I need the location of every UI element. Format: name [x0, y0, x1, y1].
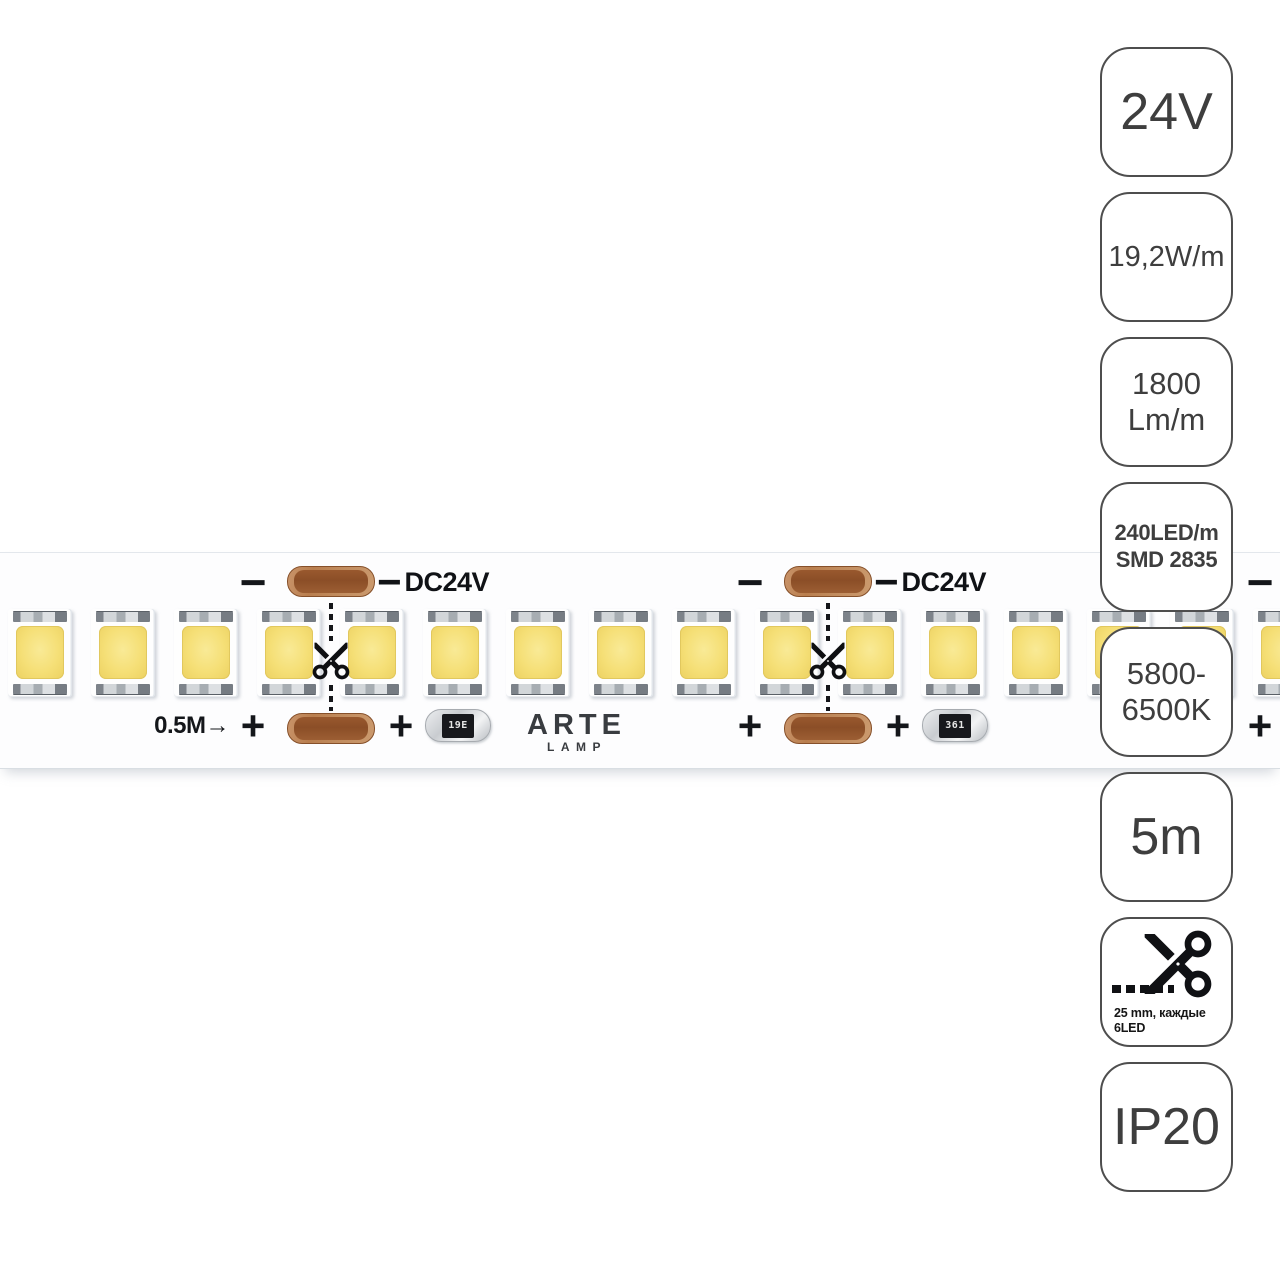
brand-name: ARTE [527, 711, 626, 740]
copper-solder-pad [784, 713, 872, 744]
led-chip [1004, 609, 1068, 697]
led-contact [96, 684, 150, 694]
brand-logo: ARTE LAMP [527, 711, 626, 753]
led-chip [506, 609, 570, 697]
led-contact [594, 684, 648, 694]
led-emitter [763, 626, 811, 679]
cut-line [329, 685, 333, 711]
cut-step-text: 25 mm, каждые [1114, 1006, 1206, 1021]
resistor-marking: 19E [442, 714, 474, 738]
brand-subname: LAMP [547, 741, 626, 753]
led-contact [96, 612, 150, 622]
led-contact [1009, 612, 1063, 622]
spec-badges: 24V 19,2W/m 1800 Lm/m 240LED/m SMD 2835 … [1100, 47, 1233, 1192]
led-chip [589, 609, 653, 697]
resistor-component: 361 [922, 709, 988, 742]
led-chip [91, 609, 155, 697]
led-chip [8, 609, 72, 697]
minus-polarity-mark: − [728, 567, 772, 597]
led-chip [672, 609, 736, 697]
led-contact [262, 612, 316, 622]
led-contact [179, 612, 233, 622]
led-chip [423, 609, 487, 697]
led-emitter [1012, 626, 1060, 679]
led-emitter [1261, 626, 1280, 679]
led-contact [262, 684, 316, 694]
cut-scissors-icon [309, 639, 353, 683]
cut-scissors-icon [806, 639, 850, 683]
resistor-marking: 361 [939, 714, 971, 738]
led-contact [511, 684, 565, 694]
badge-luminous-flux: 1800 Lm/m [1100, 337, 1233, 467]
led-chip [174, 609, 238, 697]
led-contact [428, 612, 482, 622]
badge-ip-rating: IP20 [1100, 1062, 1233, 1192]
plus-polarity-mark: + [728, 711, 772, 741]
cut-line [329, 603, 333, 641]
plus-polarity-mark: + [876, 711, 920, 741]
led-contact [1258, 684, 1280, 694]
cut-step-text: 6LED [1114, 1021, 1206, 1036]
badge-label: 19,2W/m [1108, 243, 1224, 272]
badge-label: 240LED/m [1115, 520, 1219, 547]
badge-label: 1800 [1132, 366, 1201, 402]
led-contact [428, 684, 482, 694]
led-emitter [846, 626, 894, 679]
led-chip [1253, 609, 1280, 697]
badge-cut-step: 25 mm, каждые 6LED [1100, 917, 1233, 1047]
product-image: 0.5M→ − − DC24V + + 19E − [0, 0, 1280, 1280]
badge-label: 5800- [1127, 656, 1206, 692]
badge-label: 5m [1130, 811, 1202, 863]
cut-line [826, 685, 830, 711]
cut-line [826, 603, 830, 641]
minus-polarity-mark: − [1238, 567, 1280, 597]
led-chip [921, 609, 985, 697]
plus-polarity-mark: + [1238, 711, 1280, 741]
badge-label: 24V [1120, 86, 1213, 138]
led-contact [511, 612, 565, 622]
led-emitter [182, 626, 230, 679]
segment-length-label: 0.5M→ [151, 713, 229, 739]
led-contact [926, 612, 980, 622]
led-contact [843, 612, 897, 622]
badge-label: Lm/m [1128, 402, 1206, 438]
led-contact [843, 684, 897, 694]
led-emitter [431, 626, 479, 679]
led-contact [677, 612, 731, 622]
resistor-component: 19E [425, 709, 491, 742]
voltage-text: DC24V [902, 567, 987, 598]
badge-voltage: 24V [1100, 47, 1233, 177]
led-contact [594, 612, 648, 622]
led-contact [1009, 684, 1063, 694]
led-contact [179, 684, 233, 694]
copper-solder-pad [287, 713, 375, 744]
led-emitter [597, 626, 645, 679]
dc-voltage-label: − DC24V [377, 567, 489, 597]
led-emitter [514, 626, 562, 679]
led-emitter [929, 626, 977, 679]
led-contact [13, 612, 67, 622]
led-contact [345, 684, 399, 694]
voltage-text: DC24V [405, 567, 490, 598]
led-emitter [16, 626, 64, 679]
badge-color-temperature: 5800- 6500K [1100, 627, 1233, 757]
led-contact [345, 612, 399, 622]
led-contact [677, 684, 731, 694]
copper-solder-pad [287, 566, 375, 597]
led-emitter [265, 626, 313, 679]
plus-polarity-mark: + [379, 711, 423, 741]
badge-label: IP20 [1113, 1101, 1220, 1153]
dc-voltage-label: − DC24V [874, 567, 986, 597]
badge-length: 5m [1100, 772, 1233, 902]
minus-polarity-mark: − [231, 567, 275, 597]
led-contact [13, 684, 67, 694]
badge-led-density: 240LED/m SMD 2835 [1100, 482, 1233, 612]
led-contact [760, 684, 814, 694]
led-strip: 0.5M→ − − DC24V + + 19E − [0, 552, 1280, 769]
led-emitter [348, 626, 396, 679]
cut-dash-line [1112, 985, 1174, 993]
led-contact [1258, 612, 1280, 622]
badge-label: 25 mm, каждые 6LED [1114, 1006, 1206, 1036]
plus-polarity-mark: + [231, 711, 275, 741]
copper-solder-pad [784, 566, 872, 597]
led-contact [926, 684, 980, 694]
badge-label: 6500K [1122, 692, 1212, 728]
led-contact [760, 612, 814, 622]
badge-power: 19,2W/m [1100, 192, 1233, 322]
led-emitter [99, 626, 147, 679]
led-emitter [680, 626, 728, 679]
badge-label: SMD 2835 [1116, 547, 1218, 574]
